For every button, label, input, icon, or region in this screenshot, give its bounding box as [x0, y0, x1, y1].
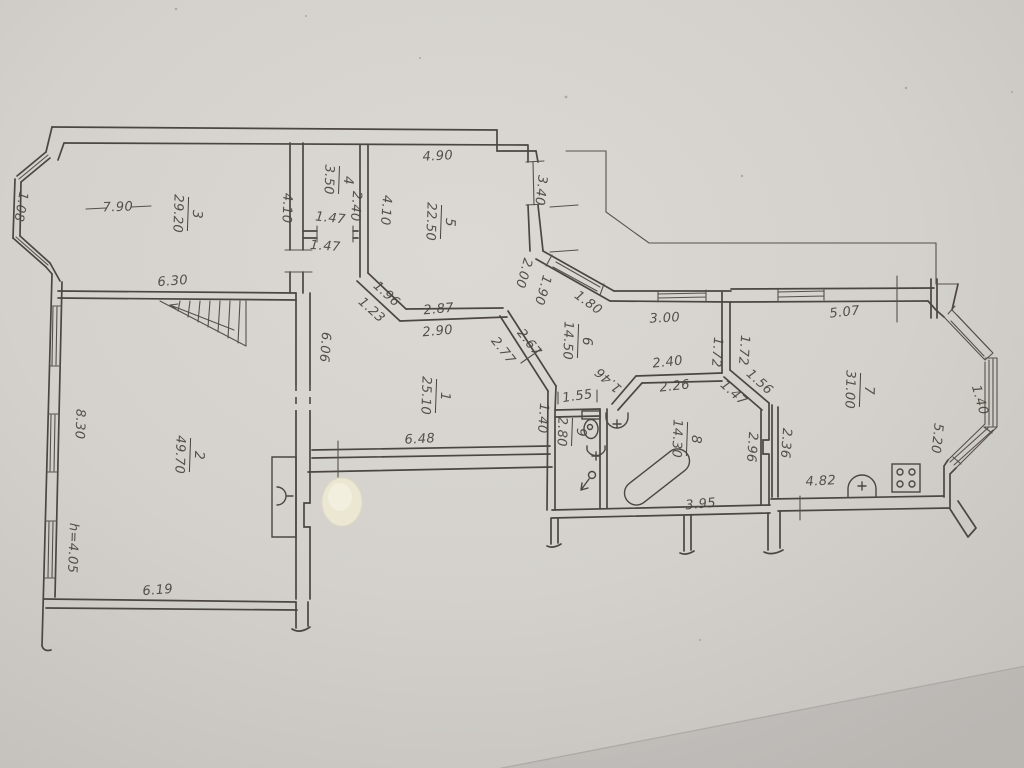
dim-label: 4.82	[805, 473, 836, 490]
room-number: 3	[189, 210, 205, 219]
room-number: 5	[442, 218, 458, 227]
dim-label: 7.90	[102, 199, 133, 215]
room-number: 6	[579, 337, 595, 346]
dim-label: 1.72	[708, 336, 725, 368]
dim-label: 2.90	[422, 323, 454, 341]
dim-label: 5.07	[829, 303, 861, 321]
dim-label: 2.87	[423, 301, 455, 319]
whiteout-blob	[322, 478, 362, 526]
dim-label: h=4.05	[64, 523, 81, 574]
dim-label: 5.20	[927, 422, 945, 454]
room-area: 49.70	[171, 435, 187, 474]
floor-plan-canvas: 1 25.10 2 49.70 3 29.20 4 3.50 5 22.50 6…	[0, 0, 1024, 768]
dim-label: 4.10	[278, 193, 294, 224]
dim-label: 6.06	[316, 331, 333, 363]
dim-label: 6.19	[142, 582, 174, 599]
dim-label: 3.40	[531, 174, 549, 206]
room-number: 9	[573, 428, 589, 437]
dim-label: 2.96	[743, 431, 760, 463]
dim-label: 1.47	[314, 209, 346, 227]
dim-label: 2.36	[777, 427, 794, 459]
dim-label: 3.00	[649, 310, 680, 327]
paper	[0, 0, 1024, 768]
room-number: 7	[861, 386, 877, 396]
dim-label: 4.90	[422, 148, 453, 165]
room-area: 22.50	[422, 202, 438, 241]
room-number: 4	[340, 176, 356, 185]
dim-label: 1.47	[309, 238, 341, 255]
dim-label: 6.48	[404, 431, 435, 448]
dim-label: 2.26	[659, 377, 691, 395]
room-area: 14.30	[668, 419, 684, 458]
dim-label: 1.72	[735, 334, 752, 366]
dim-label: 6.30	[157, 273, 189, 290]
dim-label: 4.10	[377, 194, 394, 226]
dim-label: 2.40	[347, 190, 364, 222]
room-area: 3.50	[320, 164, 336, 195]
dim-label: 3.95	[685, 496, 717, 514]
dim-label: 1.40	[534, 402, 551, 434]
room-area: 25.10	[417, 376, 433, 415]
room-area: 14.50	[559, 321, 575, 360]
room-area: 31.00	[841, 370, 857, 409]
floor-plan-photo: 1 25.10 2 49.70 3 29.20 4 3.50 5 22.50 6…	[0, 0, 1024, 768]
room-number: 8	[688, 435, 704, 444]
room-number: 1	[437, 392, 453, 401]
room-area: 29.20	[169, 194, 185, 233]
room-area: 2.80	[553, 416, 569, 447]
room-number: 2	[191, 451, 207, 460]
dim-label: 2.40	[652, 353, 684, 371]
dim-label: 8.30	[71, 409, 87, 440]
